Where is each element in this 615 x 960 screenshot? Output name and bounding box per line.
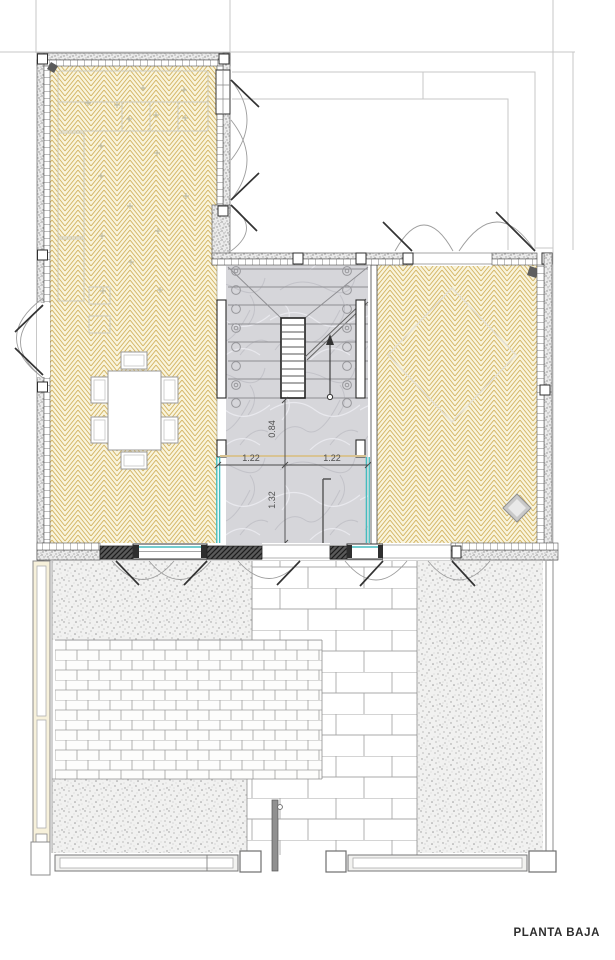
terrace-paving <box>37 560 558 855</box>
paver-area-center <box>322 640 417 855</box>
glass-wall-west <box>217 457 220 543</box>
wood-floor-left-room <box>50 66 217 543</box>
marble-floor <box>226 265 368 545</box>
plan-title: PLANTA BAJA <box>503 927 600 939</box>
stair-hall <box>215 265 371 560</box>
garden-wall-corner <box>31 842 50 875</box>
stair-side-wall-east <box>356 300 365 398</box>
gravel-area-lower-left <box>52 779 247 853</box>
paver-area-lower <box>247 779 322 855</box>
hall-partition-wall <box>371 265 377 545</box>
east-garden-wall <box>546 561 553 853</box>
floor-plan-canvas: 1.22 1.22 0.84 1.32 PLANTA BAJA <box>0 0 615 960</box>
right-room-window <box>347 544 383 559</box>
gate-pier <box>240 851 261 872</box>
brick-terrace <box>55 640 322 779</box>
floor-plan-drawing <box>0 0 615 960</box>
west-door-opening <box>37 303 50 377</box>
entry-wall <box>212 212 552 266</box>
paver-area-upper <box>252 561 417 640</box>
north-wall <box>37 53 230 60</box>
right-room <box>371 265 539 546</box>
stair-side-wall-west <box>217 300 226 398</box>
gate-pier <box>326 851 346 872</box>
gravel-area-right <box>417 561 543 853</box>
east-wall <box>537 253 552 560</box>
dining-table <box>108 371 161 450</box>
stair-central-rail <box>281 318 305 398</box>
corner-pier <box>529 851 556 872</box>
gravel-area-left <box>52 561 252 640</box>
courtyard-doors <box>231 80 259 251</box>
right-room-door-opening <box>383 543 451 560</box>
entry-doors <box>383 212 535 251</box>
gate-post <box>272 800 278 871</box>
